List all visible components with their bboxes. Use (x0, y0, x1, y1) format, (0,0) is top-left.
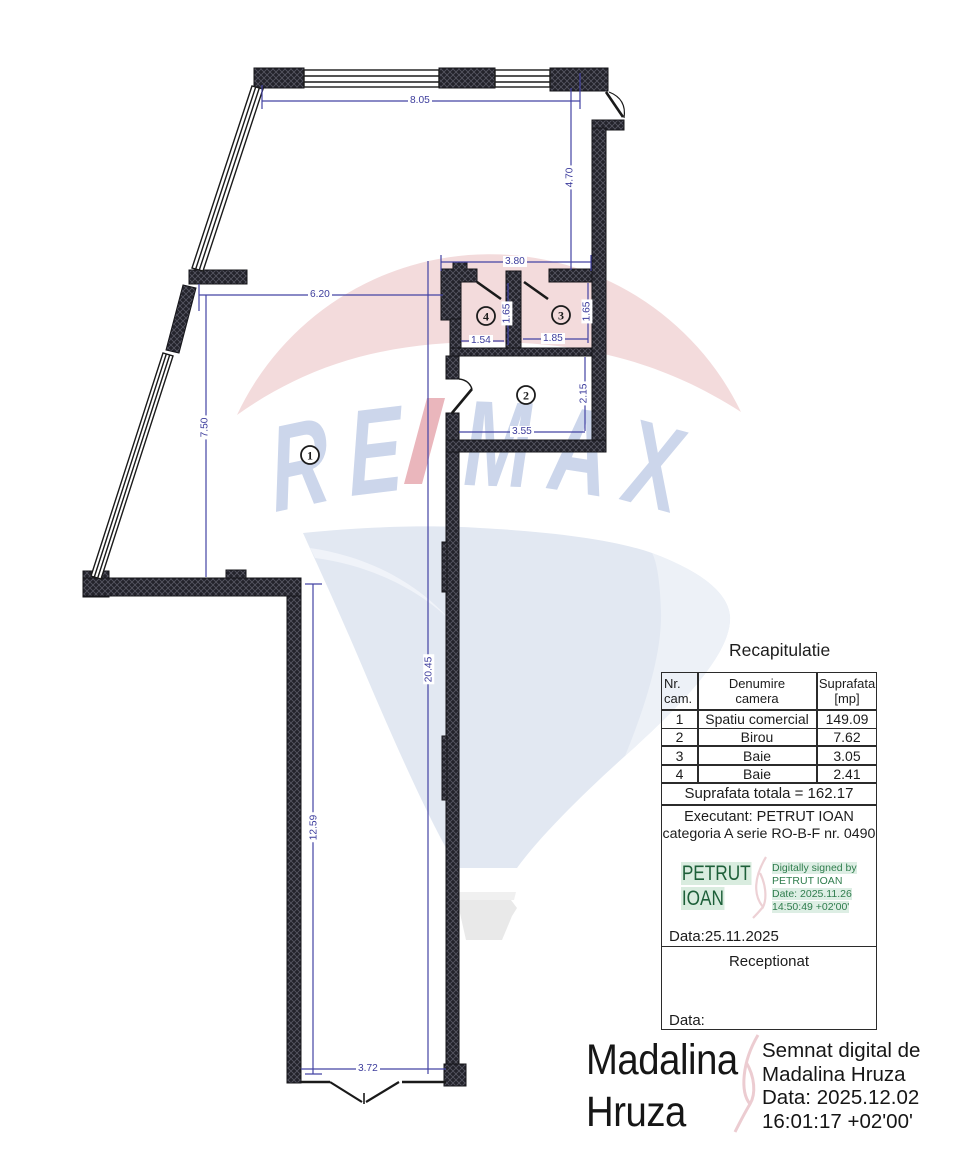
svg-text:4: 4 (483, 310, 489, 324)
svg-text:2: 2 (523, 389, 529, 403)
svg-text:3: 3 (558, 309, 564, 323)
svg-text:1: 1 (307, 449, 313, 463)
svg-text:RE: RE (264, 377, 423, 538)
